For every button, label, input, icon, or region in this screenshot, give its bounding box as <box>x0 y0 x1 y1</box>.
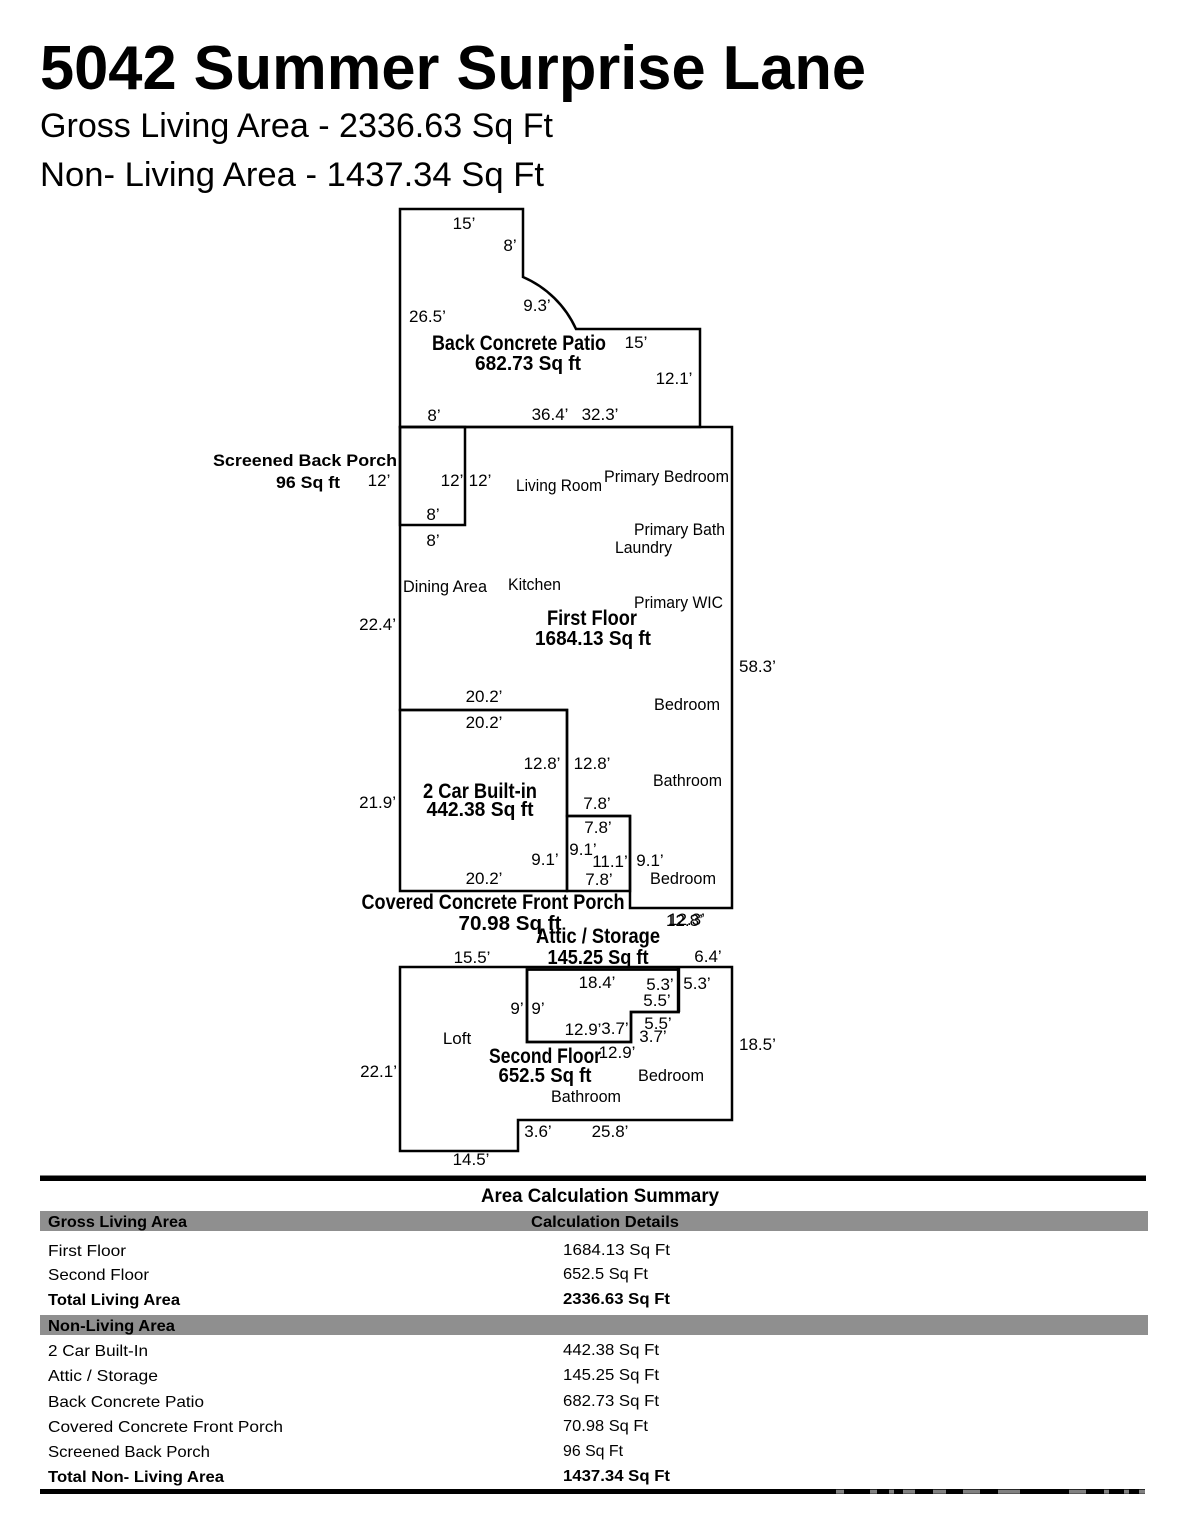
svg-text:12.1’: 12.1’ <box>656 369 693 388</box>
svg-text:1437.34 Sq Ft: 1437.34 Sq Ft <box>563 1468 671 1485</box>
svg-text:682.73 Sq Ft: 682.73 Sq Ft <box>563 1393 660 1410</box>
svg-text:145.25 Sq ft: 145.25 Sq ft <box>548 947 649 969</box>
svg-text:8’: 8’ <box>427 406 440 425</box>
svg-text:12’: 12’ <box>441 471 464 490</box>
svg-text:12’: 12’ <box>368 471 391 490</box>
svg-text:5.5’: 5.5’ <box>643 991 670 1010</box>
svg-text:Bedroom: Bedroom <box>638 1066 704 1085</box>
svg-text:Non-Living Area: Non-Living Area <box>48 1318 175 1335</box>
svg-text:70.98 Sq Ft: 70.98 Sq Ft <box>563 1418 649 1435</box>
svg-text:145.25 Sq Ft: 145.25 Sq Ft <box>563 1367 660 1384</box>
svg-text:32.3’: 32.3’ <box>582 405 619 424</box>
svg-text:11.1’: 11.1’ <box>592 852 628 871</box>
svg-text:652.5 Sq ft: 652.5 Sq ft <box>499 1065 592 1087</box>
svg-text:442.38 Sq Ft: 442.38 Sq Ft <box>563 1342 660 1359</box>
svg-text:58.3’: 58.3’ <box>739 657 776 676</box>
svg-text:8’: 8’ <box>503 236 516 255</box>
svg-text:9.1’: 9.1’ <box>531 850 558 869</box>
svg-text:652.5 Sq Ft: 652.5 Sq Ft <box>563 1266 649 1283</box>
svg-text:Gross Living Area - 2336.63 Sq: Gross Living Area - 2336.63 Sq Ft <box>40 107 554 145</box>
svg-text:9’: 9’ <box>510 999 523 1018</box>
svg-text:3.7’: 3.7’ <box>639 1027 666 1046</box>
svg-text:Area Calculation Summary: Area Calculation Summary <box>481 1186 719 1207</box>
svg-text:20.2’: 20.2’ <box>466 713 503 732</box>
svg-text:Back Concrete Patio: Back Concrete Patio <box>432 332 606 355</box>
svg-text:Primary WIC: Primary WIC <box>634 593 723 612</box>
svg-text:Gross Living Area: Gross Living Area <box>48 1214 187 1231</box>
svg-text:Non- Living Area - 1437.34 Sq: Non- Living Area - 1437.34 Sq Ft <box>40 156 545 194</box>
svg-text:7.8’: 7.8’ <box>583 794 610 813</box>
svg-text:21.9’: 21.9’ <box>359 793 396 812</box>
svg-text:Primary Bath: Primary Bath <box>634 520 725 539</box>
svg-text:Bedroom: Bedroom <box>650 869 716 888</box>
svg-text:Screened Back Porch: Screened Back Porch <box>48 1444 210 1461</box>
svg-text:12.3’: 12.3’ <box>668 910 705 929</box>
svg-text:12.9’: 12.9’ <box>599 1043 636 1062</box>
svg-text:Primary Bedroom: Primary Bedroom <box>604 467 729 486</box>
svg-text:Kitchen: Kitchen <box>508 575 561 594</box>
svg-text:3.7’: 3.7’ <box>601 1019 628 1038</box>
svg-text:Laundry: Laundry <box>615 538 672 557</box>
svg-text:Living Room: Living Room <box>516 476 602 495</box>
svg-text:26.5’: 26.5’ <box>409 307 446 326</box>
svg-text:442.38 Sq ft: 442.38 Sq ft <box>427 799 534 821</box>
svg-text:9.3’: 9.3’ <box>523 296 550 315</box>
svg-text:682.73 Sq ft: 682.73 Sq ft <box>475 353 581 375</box>
svg-text:18.5’: 18.5’ <box>739 1035 776 1054</box>
svg-text:15.5’: 15.5’ <box>454 948 491 967</box>
svg-text:20.2’: 20.2’ <box>466 869 503 888</box>
svg-text:12.8’: 12.8’ <box>574 754 611 773</box>
svg-text:12’: 12’ <box>469 471 492 490</box>
svg-text:Calculation Details: Calculation Details <box>531 1214 679 1231</box>
svg-text:7.8’: 7.8’ <box>584 818 611 837</box>
svg-text:Loft: Loft <box>443 1029 472 1048</box>
svg-text:2 Car Built-In: 2 Car Built-In <box>48 1343 148 1360</box>
svg-text:25.8’: 25.8’ <box>592 1122 629 1141</box>
svg-text:18.4’: 18.4’ <box>579 973 616 992</box>
svg-text:Bathroom: Bathroom <box>551 1087 621 1106</box>
svg-text:96 Sq Ft: 96 Sq Ft <box>563 1443 624 1460</box>
svg-text:12.9’: 12.9’ <box>565 1020 602 1039</box>
svg-text:5.3’: 5.3’ <box>683 974 710 993</box>
svg-text:Total Non- Living Area: Total Non- Living Area <box>48 1469 224 1486</box>
svg-text:20.2’: 20.2’ <box>466 687 503 706</box>
svg-text:22.1’: 22.1’ <box>360 1062 397 1081</box>
svg-text:Bathroom: Bathroom <box>653 771 722 790</box>
svg-text:Dining Area: Dining Area <box>403 577 488 596</box>
svg-text:Total Living Area: Total Living Area <box>48 1292 180 1309</box>
svg-text:Back Concrete Patio: Back Concrete Patio <box>48 1394 204 1411</box>
svg-text:Attic / Storage: Attic / Storage <box>536 925 660 948</box>
svg-text:96 Sq ft: 96 Sq ft <box>276 473 340 492</box>
svg-text:1684.13 Sq Ft: 1684.13 Sq Ft <box>563 1242 671 1259</box>
svg-text:First Floor: First Floor <box>48 1243 127 1260</box>
svg-text:Bedroom: Bedroom <box>654 695 720 714</box>
svg-text:9.1’: 9.1’ <box>636 851 663 870</box>
svg-text:2336.63 Sq Ft: 2336.63 Sq Ft <box>563 1291 671 1308</box>
svg-text:First Floor: First Floor <box>547 607 637 630</box>
svg-text:8’: 8’ <box>426 531 439 550</box>
svg-text:1684.13 Sq ft: 1684.13 Sq ft <box>535 628 651 650</box>
svg-text:5042 Summer Surprise Lane: 5042 Summer Surprise Lane <box>40 34 866 103</box>
svg-text:6.4’: 6.4’ <box>694 947 721 966</box>
svg-text:3.6’: 3.6’ <box>524 1122 551 1141</box>
svg-text:Covered Concrete Front Porch: Covered Concrete Front Porch <box>48 1419 283 1436</box>
svg-text:15’: 15’ <box>625 333 648 352</box>
svg-text:9’: 9’ <box>531 999 544 1018</box>
svg-text:Attic / Storage: Attic / Storage <box>48 1368 158 1385</box>
svg-text:Covered Concrete Front Porch: Covered Concrete Front Porch <box>362 891 625 914</box>
svg-text:Second Floor: Second Floor <box>48 1267 150 1284</box>
svg-text:7.8’: 7.8’ <box>585 870 612 889</box>
svg-text:12.8’: 12.8’ <box>524 754 561 773</box>
svg-text:Screened Back Porch: Screened Back Porch <box>213 451 397 470</box>
svg-text:36.4’: 36.4’ <box>532 405 569 424</box>
svg-text:15’: 15’ <box>453 214 476 233</box>
svg-text:8’: 8’ <box>426 505 439 524</box>
svg-text:14.5’: 14.5’ <box>453 1150 490 1169</box>
svg-text:22.4’: 22.4’ <box>359 615 396 634</box>
